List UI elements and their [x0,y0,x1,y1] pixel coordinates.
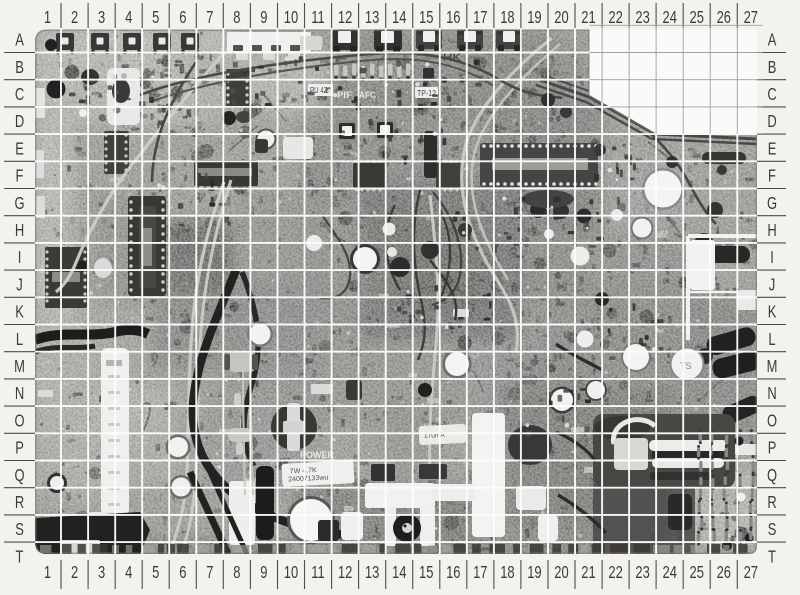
svg-text:S: S [15,520,24,540]
svg-text:3: 3 [98,563,105,583]
svg-text:7: 7 [206,563,213,583]
svg-text:Q: Q [767,466,777,486]
svg-text:8: 8 [233,8,240,28]
svg-text:O: O [14,411,24,431]
svg-text:2: 2 [71,563,78,583]
svg-text:15: 15 [419,8,434,28]
svg-text:4: 4 [125,563,132,583]
svg-text:E: E [15,139,24,159]
svg-text:L: L [768,330,775,350]
svg-text:K: K [15,303,24,323]
svg-text:27: 27 [744,563,758,583]
svg-text:PIF: PIF [337,90,352,101]
svg-text:N: N [15,384,24,404]
svg-text:25: 25 [689,563,704,583]
svg-text:5: 5 [152,8,159,28]
svg-text:11: 11 [311,8,324,28]
svg-text:G: G [767,194,777,214]
svg-text:13: 13 [365,563,380,583]
svg-text:I: I [770,248,774,268]
svg-text:12: 12 [338,563,352,583]
svg-text:I: I [18,248,22,268]
svg-text:H: H [15,221,24,241]
svg-text:16: 16 [446,563,461,583]
svg-text:S: S [768,520,777,540]
svg-text:B: B [768,58,777,78]
svg-text:6: 6 [179,563,186,583]
svg-text:19: 19 [527,563,541,583]
svg-text:22: 22 [608,8,622,28]
svg-text:O: O [767,411,777,431]
svg-text:K: K [768,303,777,323]
svg-text:B: B [15,58,24,78]
svg-text:5: 5 [152,563,159,583]
svg-text:22: 22 [608,563,622,583]
svg-text:D: D [15,112,24,132]
svg-text:10: 10 [284,563,299,583]
svg-text:24: 24 [662,8,677,28]
svg-text:14: 14 [392,8,407,28]
svg-text:2: 2 [71,8,78,28]
svg-text:16: 16 [446,8,461,28]
svg-text:AFC: AFC [359,90,376,101]
svg-text:23: 23 [635,8,650,28]
svg-text:Q: Q [14,466,24,486]
svg-text:23: 23 [635,563,650,583]
svg-text:1: 1 [44,8,51,28]
svg-text:J: J [769,275,775,295]
svg-text:27: 27 [744,8,758,28]
svg-text:17: 17 [473,8,487,28]
svg-text:T: T [16,547,24,567]
svg-text:15: 15 [419,563,434,583]
svg-text:6: 6 [179,8,186,28]
svg-text:A: A [15,31,24,51]
svg-text:F: F [768,167,776,187]
svg-text:20: 20 [554,563,569,583]
svg-text:C: C [15,85,24,105]
svg-text:12: 12 [338,8,352,28]
svg-text:21: 21 [581,563,595,583]
svg-text:L: L [16,330,23,350]
svg-text:N: N [767,384,776,404]
svg-text:H: H [767,221,776,241]
svg-text:21: 21 [581,8,595,28]
svg-text:14: 14 [392,563,407,583]
svg-text:19: 19 [527,8,541,28]
svg-text:18: 18 [500,563,515,583]
svg-text:10: 10 [284,8,299,28]
svg-text:7W 4.7K: 7W 4.7K [290,467,318,475]
svg-text:D: D [767,112,776,132]
svg-text:17: 17 [473,563,487,583]
svg-text:20: 20 [554,8,569,28]
svg-text:F: F [16,167,24,187]
svg-text:7: 7 [206,8,213,28]
svg-text:J: J [16,275,22,295]
svg-text:E: E [768,139,777,159]
svg-text:26: 26 [717,563,732,583]
svg-text:P: P [768,439,777,459]
svg-text:8: 8 [233,563,240,583]
svg-text:18: 18 [500,8,515,28]
svg-text:3: 3 [98,8,105,28]
svg-text:T: T [768,547,776,567]
svg-text:1: 1 [44,563,51,583]
svg-text:R: R [15,493,24,513]
svg-text:11: 11 [311,563,324,583]
svg-text:13: 13 [365,8,380,28]
svg-text:M: M [767,357,778,377]
svg-text:26: 26 [717,8,732,28]
svg-text:M: M [14,357,25,377]
svg-text:4: 4 [125,8,132,28]
svg-text:TS: TS [680,361,692,371]
svg-text:9: 9 [260,8,267,28]
svg-text:G: G [14,194,24,214]
svg-text:9: 9 [260,563,267,583]
svg-text:A: A [768,31,777,51]
svg-text:C: C [767,85,776,105]
svg-text:24: 24 [662,563,677,583]
svg-text:P: P [15,439,24,459]
svg-text:R: R [767,493,776,513]
svg-text:25: 25 [689,8,704,28]
